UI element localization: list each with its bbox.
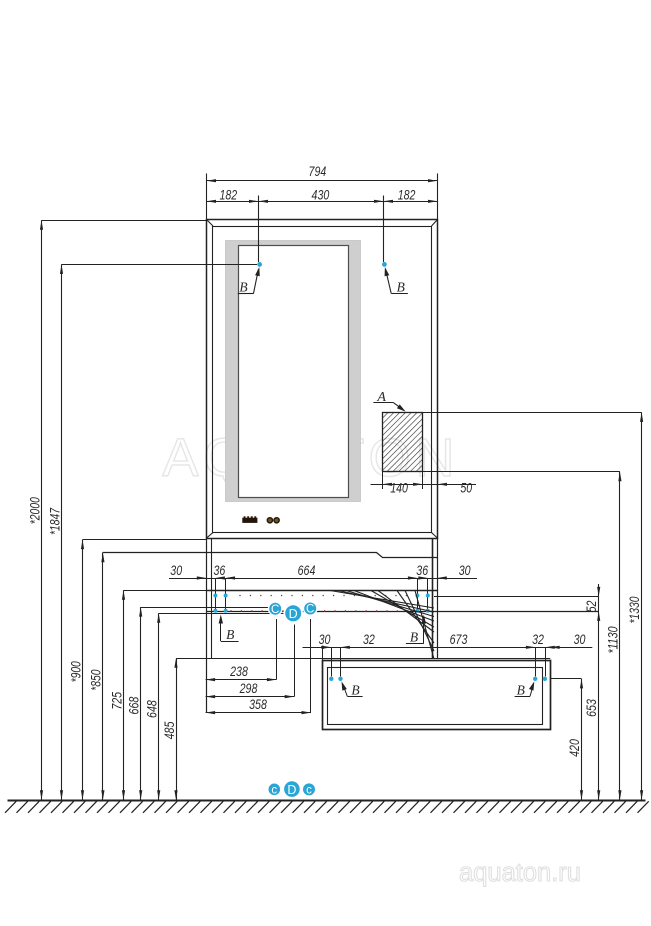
svg-text:140: 140	[390, 479, 408, 495]
svg-text:B: B	[226, 627, 234, 642]
svg-text:648: 648	[144, 700, 160, 718]
svg-text:725: 725	[108, 692, 124, 710]
svg-text:A: A	[376, 390, 386, 405]
svg-text:*1847: *1847	[46, 507, 62, 535]
svg-text:298: 298	[239, 680, 258, 696]
svg-text:B: B	[239, 280, 247, 295]
svg-text:B: B	[397, 279, 405, 294]
svg-text:30: 30	[574, 631, 586, 647]
svg-text:C: C	[306, 604, 314, 616]
svg-text:D: D	[289, 607, 298, 621]
svg-text:32: 32	[532, 631, 544, 647]
svg-text:*850: *850	[88, 669, 104, 690]
svg-text:30: 30	[170, 562, 182, 578]
svg-text:36: 36	[214, 562, 226, 578]
svg-text:B: B	[410, 629, 418, 644]
svg-text:794: 794	[309, 163, 327, 179]
svg-text:30: 30	[459, 562, 471, 578]
svg-text:c: c	[271, 785, 277, 797]
svg-text:36: 36	[416, 562, 428, 578]
svg-text:*1130: *1130	[604, 626, 620, 653]
svg-text:B: B	[517, 682, 525, 697]
svg-text:50: 50	[460, 479, 472, 495]
svg-text:*2000: *2000	[26, 497, 42, 524]
svg-text:c: c	[306, 785, 312, 797]
svg-text:B: B	[351, 682, 359, 697]
svg-text:30: 30	[319, 631, 331, 647]
svg-text:182: 182	[398, 187, 416, 203]
svg-text:52: 52	[583, 600, 599, 612]
svg-text:C: C	[271, 604, 279, 616]
svg-text:430: 430	[312, 187, 330, 203]
svg-text:aquaton.ru: aquaton.ru	[459, 859, 581, 887]
svg-text:D: D	[287, 783, 296, 797]
svg-text:668: 668	[126, 697, 142, 715]
svg-text:653: 653	[583, 699, 599, 717]
svg-text:664: 664	[298, 562, 316, 578]
svg-text:673: 673	[450, 631, 468, 647]
svg-text:238: 238	[229, 663, 248, 679]
svg-text:420: 420	[566, 739, 582, 757]
svg-text:182: 182	[219, 187, 237, 203]
svg-text:485: 485	[161, 721, 177, 739]
svg-text:*900: *900	[67, 661, 83, 682]
svg-text:*1330: *1330	[626, 596, 642, 623]
svg-text:358: 358	[249, 696, 267, 712]
svg-text:32: 32	[363, 631, 375, 647]
